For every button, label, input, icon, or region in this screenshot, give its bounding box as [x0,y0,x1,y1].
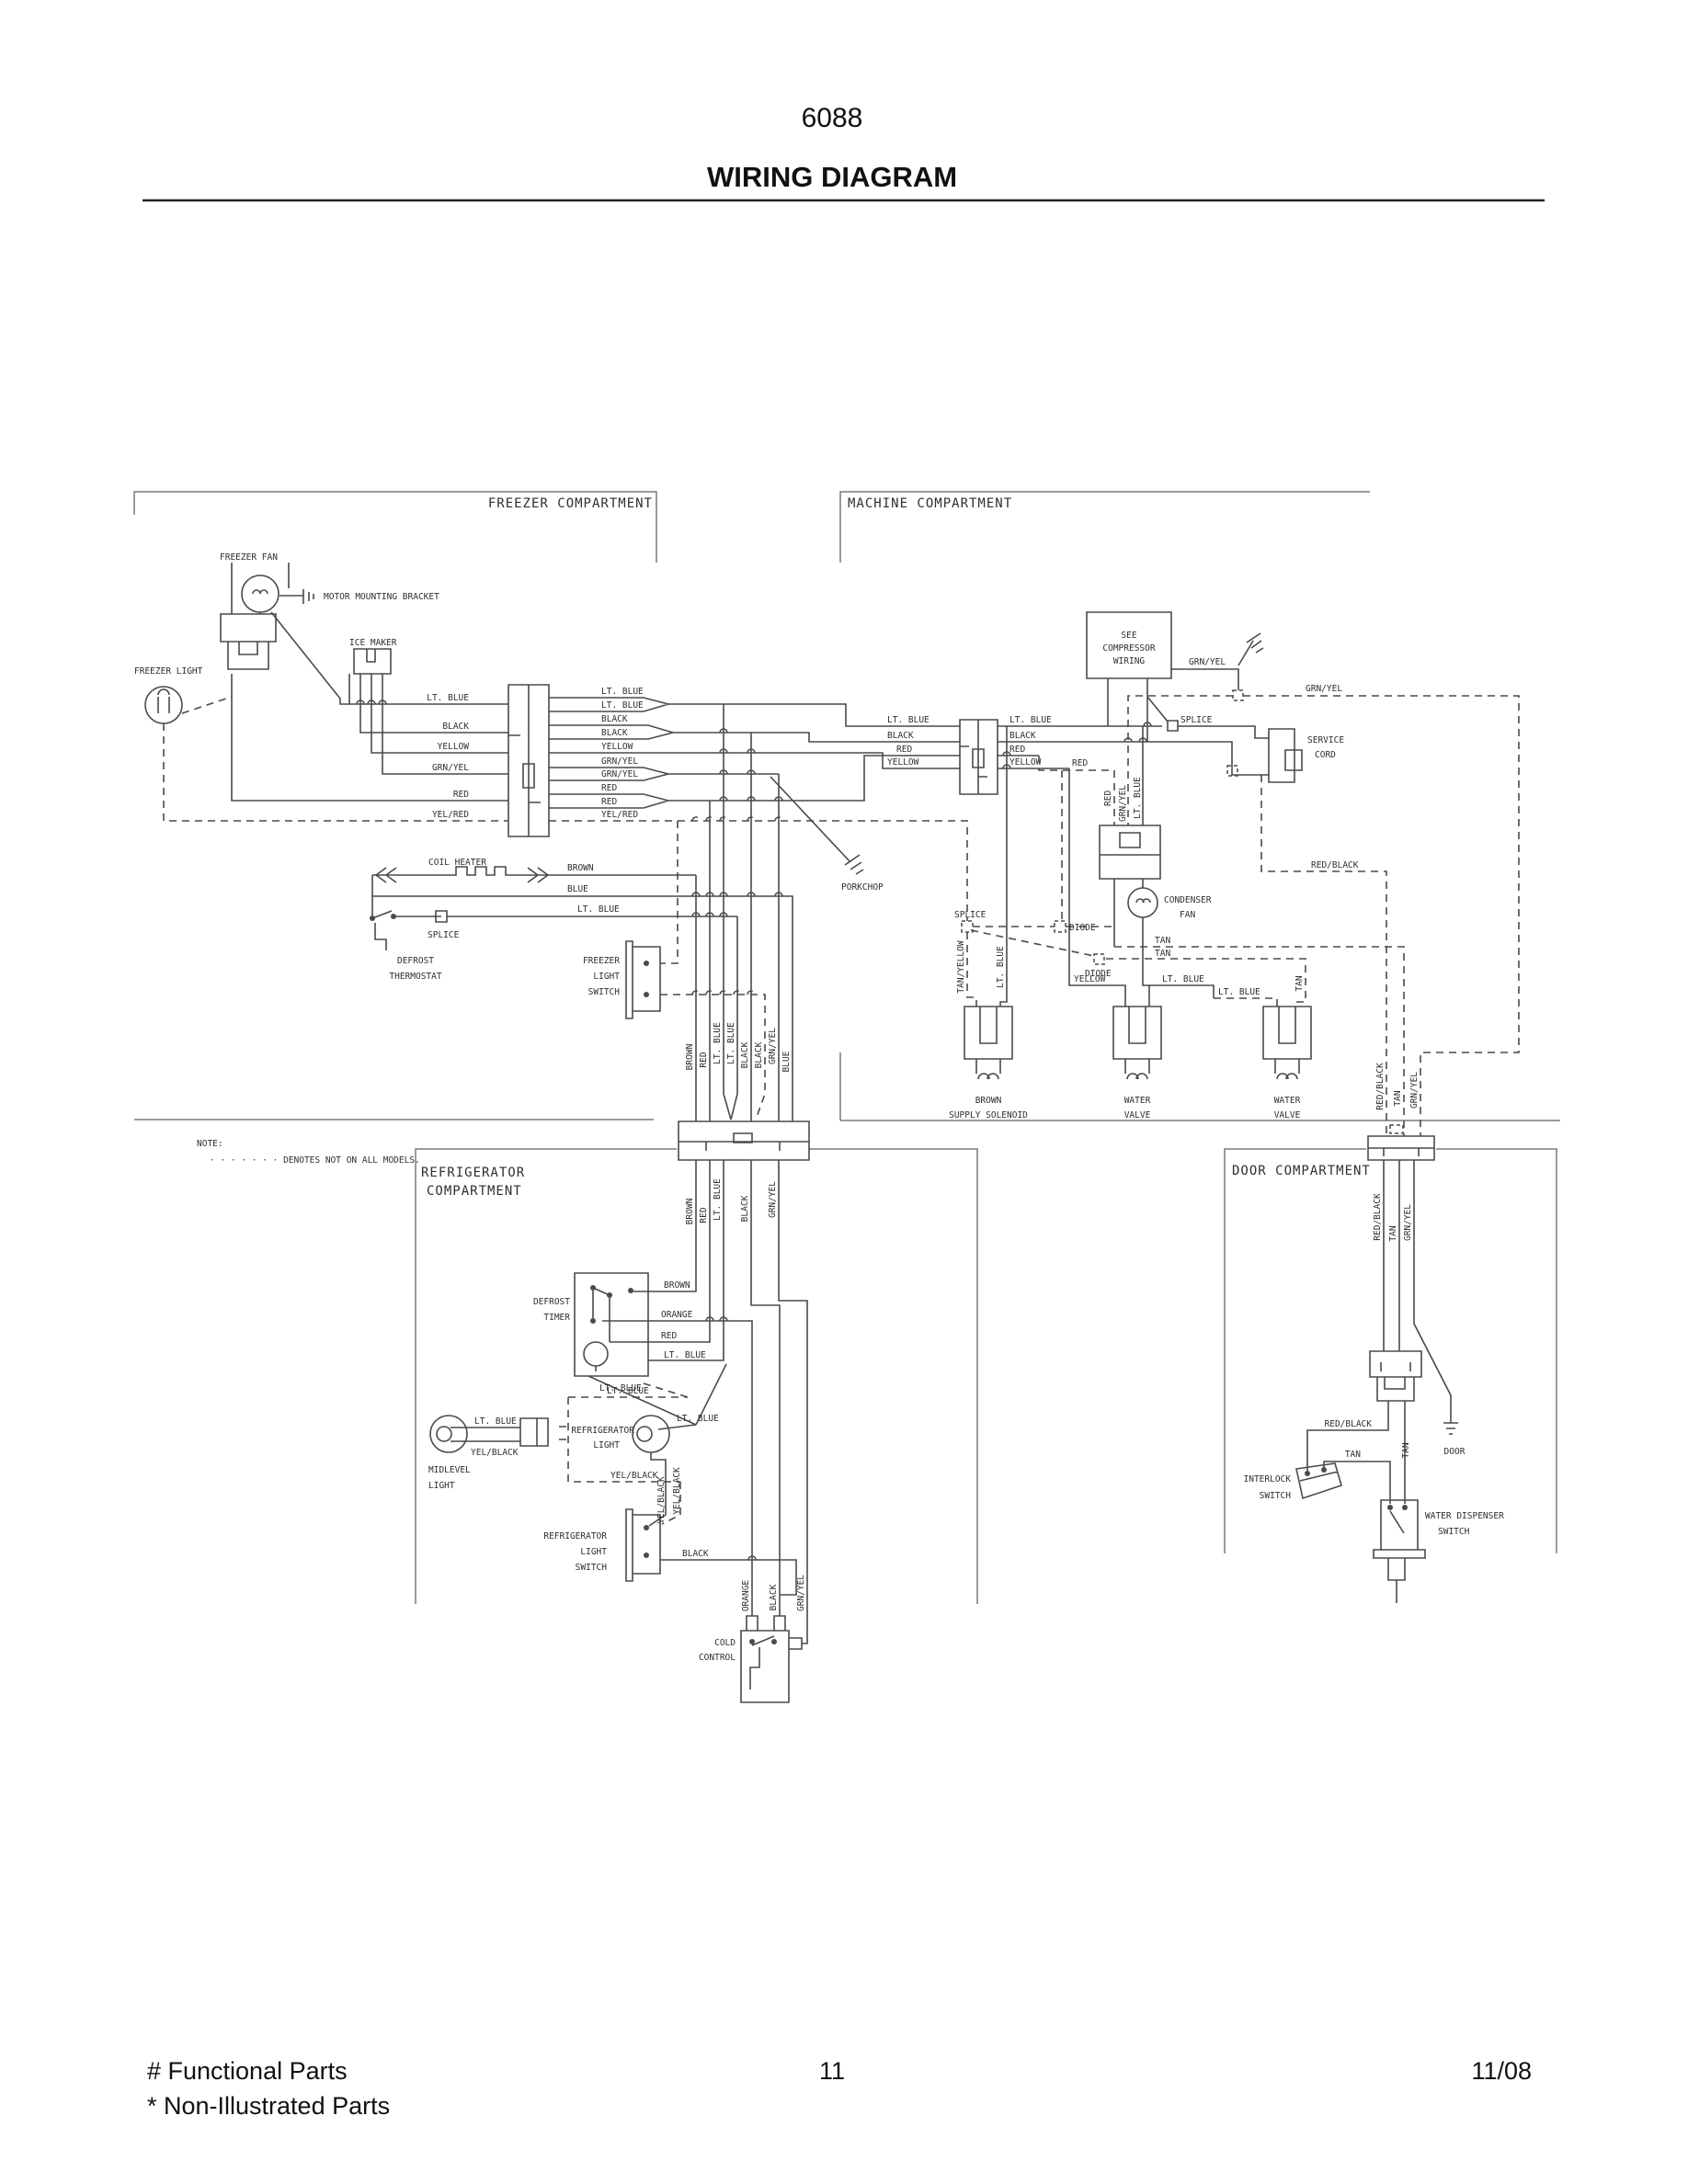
midlevel-light-inner-icon [437,1427,451,1441]
wire-label-red-black: RED/BLACK [1375,1063,1386,1110]
center-bus-labels: BROWN RED LT. BLUE LT. BLUE BLACK BLACK … [685,1022,792,1224]
wire-label-black: BLACK [1009,731,1036,741]
machine-compartment-title: MACHINE COMPARTMENT [848,496,1012,511]
wire-label-brown: BROWN [664,1280,690,1291]
wire-label-lt-blue: LT. BLUE [601,700,644,711]
note-heading: NOTE: [197,1139,223,1149]
label-condenser-fan-1: CONDENSER [1164,895,1212,905]
footer-date: 11/08 [1471,2057,1532,2085]
wire-label-red-black: RED/BLACK [1311,860,1359,870]
valve-coil-icons [978,1074,1297,1079]
refrigerator-compartment-title-1: REFRIGERATOR [421,1166,525,1180]
label-cold-control-1: COLD [714,1638,736,1648]
defrost-timer-motor-icon [584,1342,608,1366]
contact-dots [370,914,1408,1645]
wire-label-brown: BROWN [685,1043,695,1070]
label-supply-solenoid-1: BROWN [975,1096,1002,1106]
machine-labels: LT. BLUE BLACK RED YELLOW LT. BLUE BLACK… [841,631,1420,1120]
wire-label-red: RED [896,745,912,755]
label-splice: SPLICE [1180,715,1213,725]
wire-label-yellow: YELLOW [601,742,633,752]
dashed-wires [164,696,1519,1524]
wire-label-yel-black: YEL/BLACK [672,1467,682,1515]
refrigerator-light-bulb-icon [633,1416,669,1452]
wiring-diagram-canvas: 6088 WIRING DIAGRAM FREEZER COMPARTMENT … [0,0,1688,2184]
wire-label-yellow: YELLOW [438,742,470,752]
label-splice: SPLICE [428,930,460,940]
label-midlevel-light-2: LIGHT [428,1481,455,1491]
label-diode: DIODE [1069,923,1096,933]
wire-label-blue: BLUE [781,1051,792,1072]
wire-label-brown: BROWN [567,863,594,873]
label-supply-solenoid-2: SUPPLY SOLENOID [949,1110,1028,1120]
wire-label-grn-yel: GRN/YEL [1409,1072,1420,1109]
wire-label-black: BLACK [442,722,469,732]
cold-control-blade [752,1636,774,1645]
label-door: DOOR [1444,1447,1466,1457]
label-compressor-1: SEE [1121,631,1136,641]
label-service-cord-1: SERVICE [1307,735,1344,745]
door-labels: RED/BLACK TAN GRN/YEL RED/BLACK TAN TAN … [1244,1193,1505,1537]
page-title: WIRING DIAGRAM [707,161,957,193]
wire-label-tan: TAN [1155,949,1170,959]
wire-label-yel-black: YEL/BLACK [656,1476,667,1524]
wire-label-black: BLACK [682,1549,709,1559]
wire-label-lt-blue: LT. BLUE [1218,987,1260,997]
label-defrost-thermostat-1: DEFROST [397,956,434,966]
wire-label-red: RED [453,790,469,800]
ground-ticks [303,589,1458,1434]
wire-label-yel-black: YEL/BLACK [610,1471,658,1481]
wire-label-black: BLACK [601,728,628,738]
label-water-dispenser-switch-1: WATER DISPENSER [1425,1511,1504,1521]
wire-label-grn-yel: GRN/YEL [768,1181,778,1218]
midlevel-light-bulb-icon [430,1416,467,1452]
compartment-borders [134,492,1560,1604]
wire-label-yel-black: YEL/BLACK [471,1448,519,1458]
wire-label-tan: TAN [1295,975,1305,991]
footer-non-illustrated-parts: * Non-Illustrated Parts [147,2092,390,2120]
label-refrigerator-light-2: LIGHT [593,1440,620,1450]
wire-label-lt-blue: LT. BLUE [713,1178,723,1221]
freezer-compartment-title: FREEZER COMPARTMENT [488,496,653,511]
wire-label-grn-yel: GRN/YEL [1306,684,1342,694]
wire-label-tan: TAN [1401,1442,1411,1458]
label-ice-maker: ICE MAKER [349,638,397,648]
label-freezer-fan: FREEZER FAN [220,552,278,563]
door-compartment-title: DOOR COMPARTMENT [1232,1164,1371,1178]
wire-label-grn-yel: GRN/YEL [768,1028,778,1064]
wire-label-tan: TAN [1345,1450,1361,1460]
label-freezer-light-switch-2: LIGHT [593,972,620,982]
wire-label-red: RED [1009,745,1025,755]
wire-label-black: BLACK [740,1195,750,1222]
label-midlevel-light-1: MIDLEVEL [428,1465,471,1475]
wire-label-lt-blue: LT. BLUE [664,1350,706,1360]
wire-label-grn-yel: GRN/YEL [1403,1204,1413,1241]
wire-label-red: RED [1072,758,1088,768]
condenser-fan-coil-icon [1136,899,1150,903]
wire-label-tan-yellow: TAN/YELLOW [956,940,966,993]
label-defrost-thermostat-2: THERMOSTAT [389,972,441,982]
wire-label-lt-blue: LT. BLUE [607,1386,649,1396]
label-interlock-switch-2: SWITCH [1260,1491,1292,1501]
label-water-valve-1: WATER [1124,1096,1151,1106]
wire-label-black: BLACK [601,714,628,724]
label-defrost-timer-1: DEFROST [533,1297,570,1307]
label-motor-mounting-bracket: MOTOR MOUNTING BRACKET [324,592,439,602]
refrigerator-light-inner-icon [637,1427,652,1441]
refrigerator-compartment-title-2: COMPARTMENT [427,1184,522,1199]
wire-label-lt-blue: LT. BLUE [713,1022,723,1064]
wire-label-lt-blue: LT. BLUE [726,1022,736,1064]
label-water-valve-2: VALVE [1274,1110,1301,1120]
wire-label-yellow: YELLOW [1009,757,1042,768]
wire-label-lt-blue: LT. BLUE [601,687,644,697]
wire-label-red: RED [601,797,617,807]
wire-label-black: BLACK [754,1041,764,1068]
label-freezer-light-switch-1: FREEZER [583,956,620,966]
wire-label-lt-blue: LT. BLUE [887,715,930,725]
freezer-light-bulb-icon [145,687,182,723]
wire-label-lt-blue: LT. BLUE [996,946,1006,988]
footer-functional-parts: # Functional Parts [147,2057,348,2085]
freezer-light-filament-icon [158,689,169,695]
label-condenser-fan-2: FAN [1180,910,1195,920]
doc-number: 6088 [802,103,863,133]
label-porkchop: PORKCHOP [841,882,884,893]
note: NOTE: · · · · · · · DENOTES NOT ON ALL M… [197,1139,420,1166]
label-refrigerator-light-switch-1: REFRIGERATOR [543,1531,607,1541]
label-service-cord-2: CORD [1315,750,1336,760]
wire-label-yellow: YELLOW [887,757,919,768]
wire-label-orange: ORANGE [661,1310,693,1320]
label-splice: SPLICE [954,910,987,920]
freezer-fan-coil-icon [253,590,268,594]
manual-page: 6088 WIRING DIAGRAM FREEZER COMPARTMENT … [0,0,1688,2184]
wire-label-lt-blue: LT. BLUE [1009,715,1052,725]
wire-label-red: RED [1103,791,1113,806]
label-refrigerator-light-switch-3: SWITCH [576,1563,608,1573]
page-header: 6088 WIRING DIAGRAM [143,103,1545,200]
wire-label-lt-blue: LT. BLUE [577,904,620,915]
wire-label-red: RED [699,1207,709,1223]
wire-label-blue: BLUE [567,884,588,894]
wire-label-yel-red: YEL/RED [432,810,469,820]
wire-label-lt-blue: LT. BLUE [677,1414,719,1424]
wire-label-lt-blue: LT. BLUE [474,1416,517,1427]
freezer-labels: FREEZER FAN MOTOR MOUNTING BRACKET FREEZ… [134,552,644,997]
wire-label-black: BLACK [769,1584,779,1610]
label-compressor-2: COMPRESSOR [1102,643,1155,654]
label-refrigerator-light-1: REFRIGERATOR [571,1426,634,1436]
wire-label-orange: ORANGE [741,1580,751,1612]
label-interlock-switch-1: INTERLOCK [1244,1474,1292,1484]
wire-label-lt-blue: LT. BLUE [427,693,469,703]
wire-label-yellow: YELLOW [1074,974,1106,984]
wire-label-tan: TAN [1393,1090,1403,1106]
wire-label-red-black: RED/BLACK [1325,1419,1373,1429]
wire-label-red: RED [661,1331,677,1341]
refrigerator-labels: DEFROST TIMER BROWN ORANGE RED LT. BLUE … [428,1280,806,1663]
label-cold-control-2: CONTROL [699,1653,736,1663]
wire-label-brown: BROWN [685,1198,695,1224]
label-water-valve-2: VALVE [1124,1110,1151,1120]
label-compressor-3: WIRING [1113,656,1146,666]
footer-page-number: 11 [819,2057,845,2085]
wire-label-red: RED [601,783,617,793]
label-defrost-timer-2: TIMER [543,1313,570,1323]
label-water-valve-1: WATER [1274,1096,1301,1106]
label-freezer-light: FREEZER LIGHT [134,666,203,677]
wire-label-grn-yel: GRN/YEL [601,756,638,767]
wire-label-red-black: RED/BLACK [1373,1193,1383,1241]
wire-label-grn-yel: GRN/YEL [796,1575,806,1611]
wire-label-lt-blue: LT. BLUE [1162,974,1204,984]
wire-label-grn-yel: GRN/YEL [432,763,469,773]
wire-label-tan: TAN [1388,1225,1398,1241]
label-water-dispenser-switch-2: SWITCH [1438,1527,1470,1537]
label-coil-heater: COIL HEATER [428,858,486,868]
wire-label-lt-blue: LT. BLUE [1133,777,1143,819]
wire-label-grn-yel: GRN/YEL [601,769,638,779]
wire-label-red: RED [699,1052,709,1067]
wire-label-yel-red: YEL/RED [601,810,638,820]
label-freezer-light-switch-3: SWITCH [588,987,621,997]
wire-label-tan: TAN [1155,936,1170,946]
note-body: · · · · · · · DENOTES NOT ON ALL MODELS. [210,1155,420,1166]
wire-label-black: BLACK [740,1041,750,1068]
wire-hops [357,700,1151,1560]
label-refrigerator-light-switch-2: LIGHT [580,1547,607,1557]
wire-label-black: BLACK [887,731,914,741]
wire-label-grn-yel: GRN/YEL [1118,785,1128,822]
page-footer: # Functional Parts * Non-Illustrated Par… [147,2057,1532,2120]
wire-label-grn-yel: GRN/YEL [1189,657,1226,667]
